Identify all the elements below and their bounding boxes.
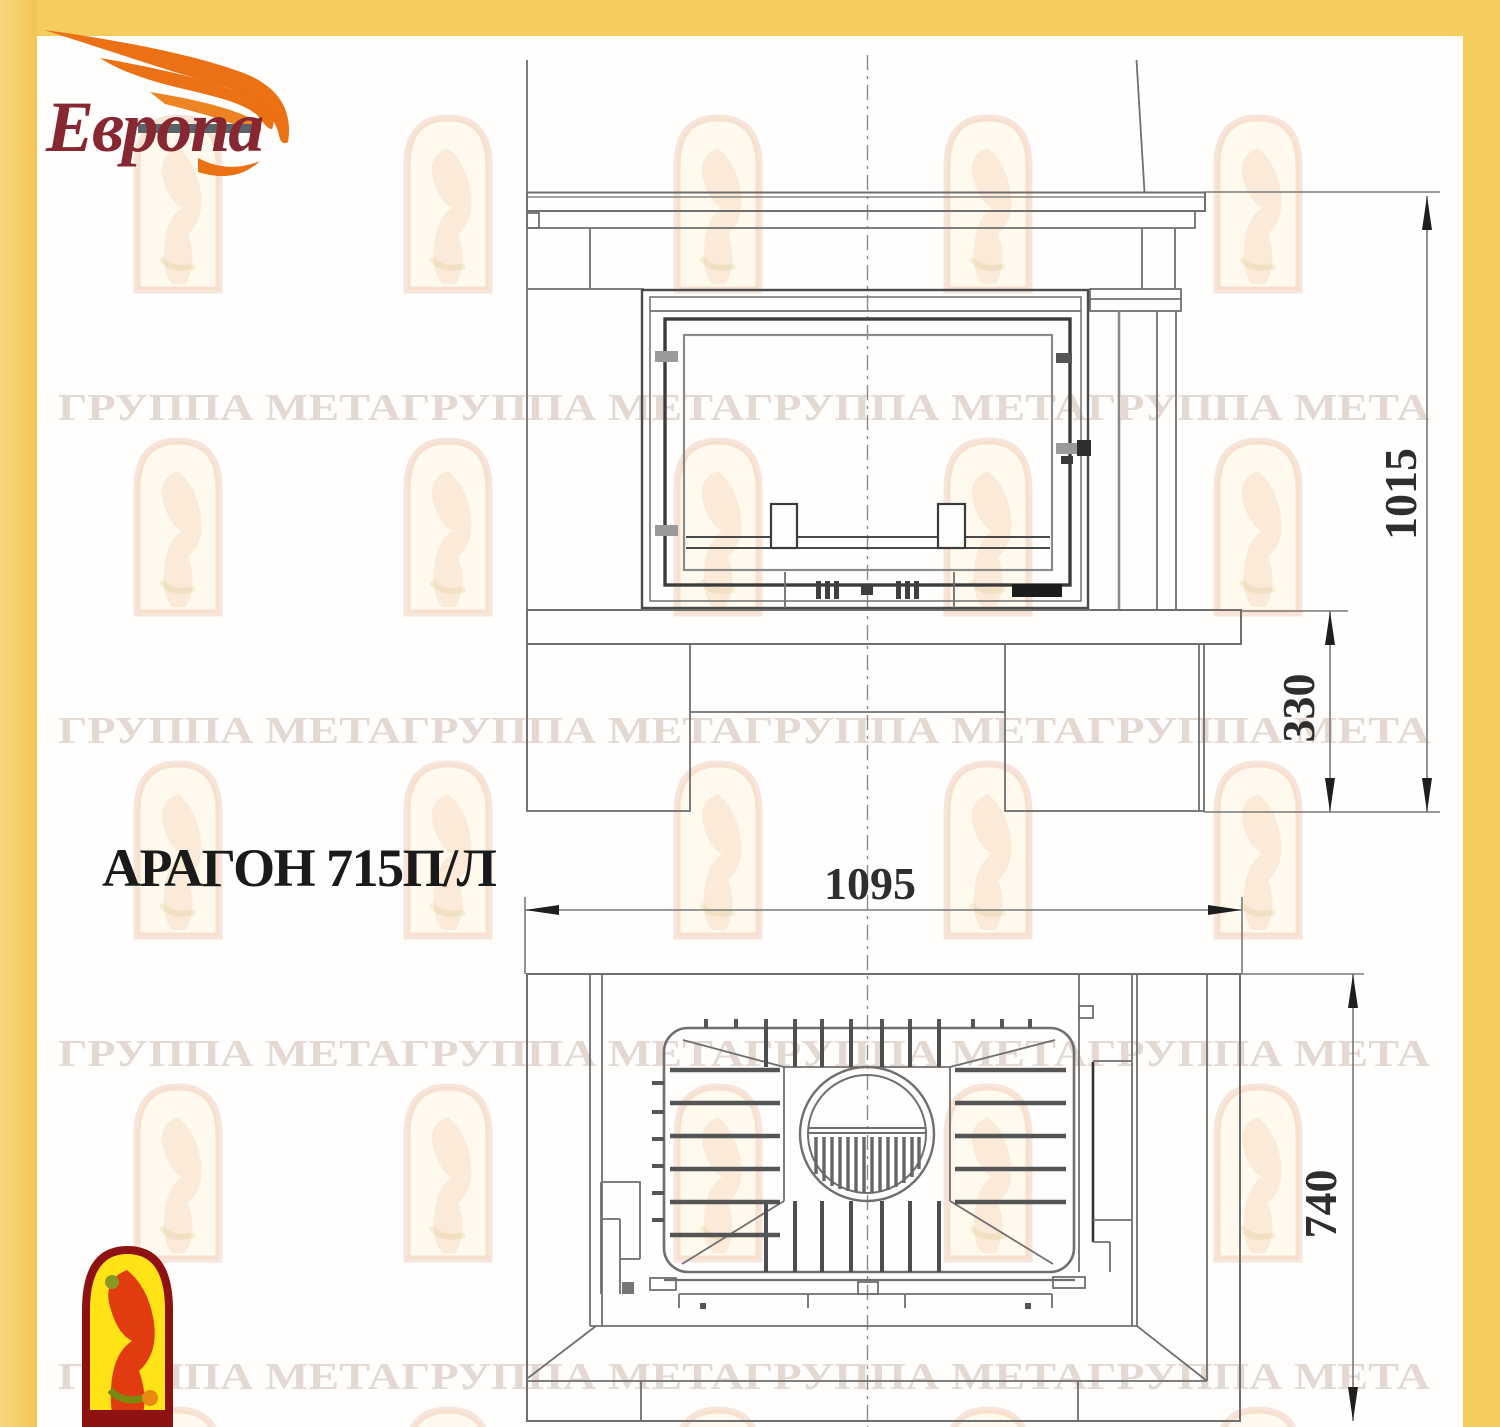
svg-text:330: 330 [1273, 674, 1324, 743]
svg-text:1015: 1015 [1375, 448, 1426, 540]
svg-text:740: 740 [1295, 1170, 1346, 1239]
svg-text:ГРУППА МЕТАГРУППА МЕТАГРУППА М: ГРУППА МЕТАГРУППА МЕТАГРУППА МЕТАГРУППА … [58, 710, 1431, 752]
svg-text:Европа: Европа [45, 87, 263, 167]
svg-text:ГРУППА МЕТАГРУППА МЕТАГРУППА М: ГРУППА МЕТАГРУППА МЕТАГРУППА МЕТАГРУППА … [58, 387, 1431, 429]
svg-text:АРАГОН 715П/Л: АРАГОН 715П/Л [102, 838, 497, 898]
svg-text:1095: 1095 [824, 858, 916, 909]
svg-text:ГРУППА МЕТАГРУППА МЕТАГРУППА М: ГРУППА МЕТАГРУППА МЕТАГРУППА МЕТАГРУППА … [58, 1356, 1431, 1398]
